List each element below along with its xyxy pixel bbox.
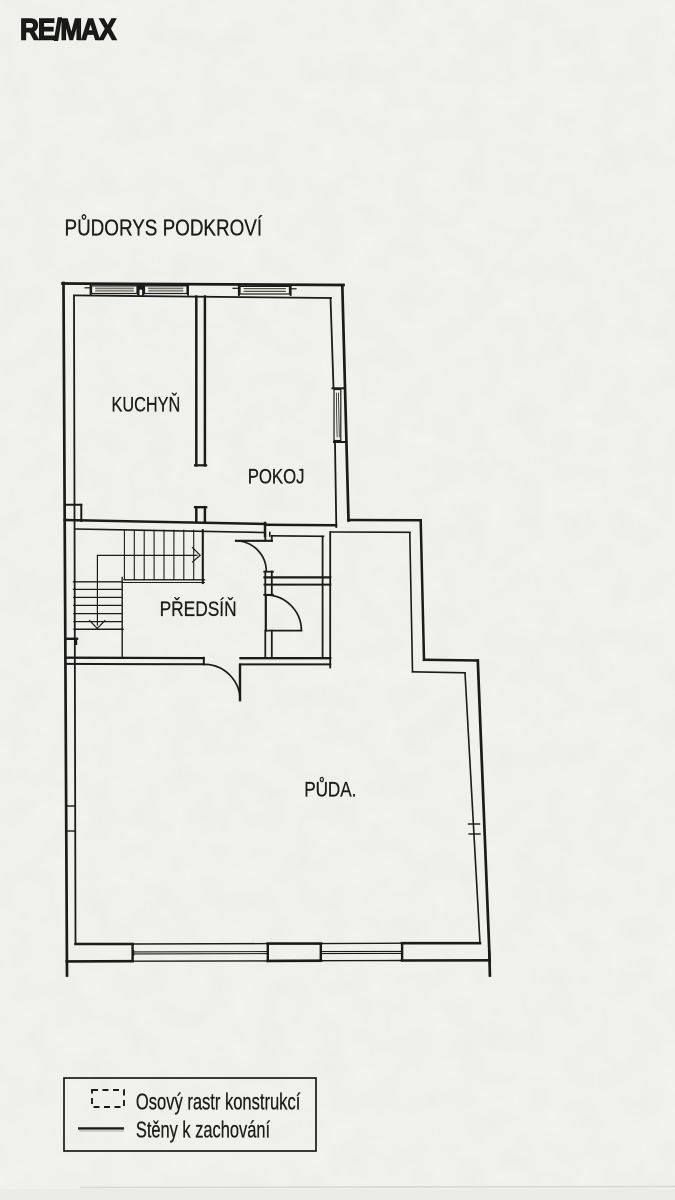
svg-text:RE/MAX: RE/MAX xyxy=(20,13,117,46)
svg-text:POKOJ: POKOJ xyxy=(248,466,305,489)
svg-text:PŘEDSÍŇ: PŘEDSÍŇ xyxy=(160,596,237,621)
svg-text:PŮDA.: PŮDA. xyxy=(304,775,356,802)
svg-text:KUCHYŇ: KUCHYŇ xyxy=(112,392,181,417)
svg-text:Stěny k zachování: Stěny k zachování xyxy=(136,1118,270,1143)
svg-text:Osový rastr konstrukcí: Osový rastr konstrukcí xyxy=(136,1090,301,1115)
svg-text:PŮDORYS PODKROVÍ: PŮDORYS PODKROVÍ xyxy=(65,215,263,241)
